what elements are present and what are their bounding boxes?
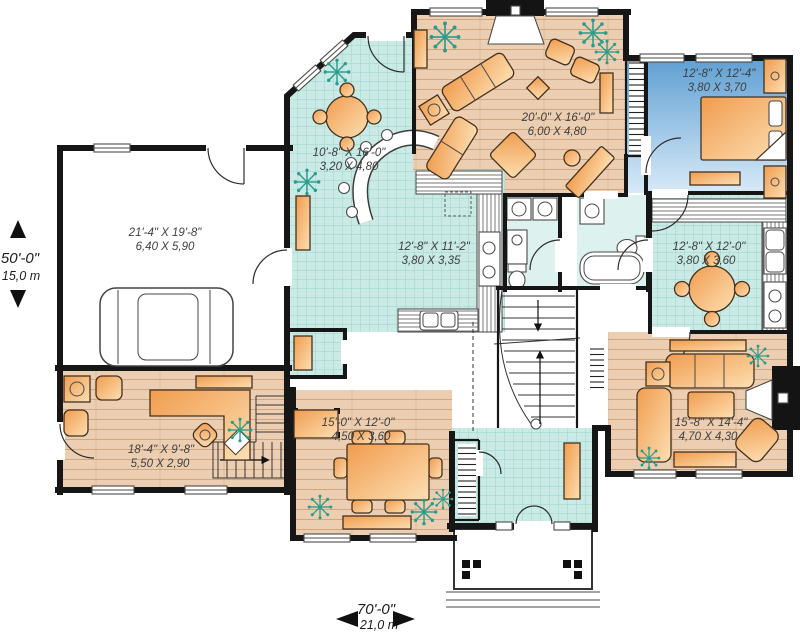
living-shelf [414, 30, 427, 68]
porch-post [563, 560, 571, 568]
bar-stool [382, 130, 393, 141]
window [640, 54, 684, 62]
plant-icon [228, 418, 253, 443]
garage-dimensions-label: 21'-4" X 19'-8" [128, 227, 203, 239]
plant-icon [308, 495, 333, 520]
side-table-icon [646, 362, 670, 386]
arrow-right-icon [393, 611, 415, 627]
console-table [670, 340, 746, 351]
kitchen-counter-top [416, 171, 502, 194]
plant-icon [747, 345, 770, 368]
width-metric-label: 21,0 m [359, 618, 398, 632]
breakfast-dimensions-label: 10'-8" X 16'-0" [313, 147, 387, 159]
window [92, 486, 134, 494]
plant-icon [411, 499, 438, 526]
dining-dimensions-label: 15'-0" X 12'-0" [322, 417, 396, 429]
window [304, 534, 350, 542]
arrow-left-icon [336, 611, 358, 627]
front-porch [446, 529, 600, 607]
kitchen-dimensions-label: 12'-8" X 11'-2" [398, 241, 471, 253]
office-side-table-icon [64, 376, 90, 402]
arrow-down-icon [10, 290, 26, 308]
porch-post [473, 560, 481, 568]
credenza [196, 376, 252, 388]
width-dimension-marker: 70'-0" 21,0 m [336, 601, 415, 632]
window [696, 54, 752, 62]
window [370, 534, 416, 542]
family-dimensions-metric: 4,70 X 4,30 [679, 431, 738, 443]
plant-icon [294, 169, 321, 196]
nook-shelf [296, 196, 310, 250]
office-dimensions-label: 18'-4" X 9'-8" [128, 444, 195, 456]
sofa-icon [666, 354, 754, 388]
plant-icon [638, 447, 661, 470]
mudroom-bench [294, 336, 312, 370]
porch-post [574, 571, 582, 579]
breakfast-dimensions-metric: 3,20 X 4,80 [320, 161, 379, 173]
bar-stool [347, 207, 358, 218]
depth-dimension-marker: 50'-0" 15,0 m [1, 220, 40, 308]
hall-closet-shelving [590, 348, 604, 392]
window [696, 470, 742, 478]
sideboard [343, 516, 411, 529]
bedroom-bench [690, 172, 740, 185]
family-dimensions-label: 15'-8" X 14'-4" [675, 417, 749, 429]
porch-post [462, 560, 470, 568]
foyer-bench [564, 443, 580, 499]
garage-dimensions-metric: 6,40 X 5,90 [136, 241, 195, 253]
foyer-closet-shelving [458, 444, 476, 516]
window [94, 144, 130, 152]
dinette-counter-top [652, 199, 786, 222]
dryer [533, 198, 557, 220]
office-dimensions-metric: 5,50 X 2,90 [131, 458, 190, 470]
pillow [769, 101, 782, 126]
plant-icon [324, 59, 351, 86]
porch-post [574, 560, 582, 568]
window [185, 486, 227, 494]
living-dimensions-label: 20'-0" X 16'-0" [521, 112, 596, 124]
car-icon [100, 288, 233, 366]
family-bench [674, 452, 736, 467]
floor-plan-drawing: 21'-4" X 19'-8" 6,40 X 5,90 10'-8" X 16'… [0, 0, 800, 633]
bedroom-dimensions-label: 12'-8" X 12'-4" [683, 68, 757, 80]
dining-dimensions-metric: 4,50 X 3,60 [332, 431, 391, 443]
office-armchair [64, 410, 88, 436]
tv-cabinet [600, 73, 613, 113]
living-dimensions-metric: 6,00 X 4,80 [528, 126, 587, 138]
window [430, 8, 482, 16]
office-armchair [96, 376, 122, 400]
main-staircase [494, 290, 580, 429]
nightstand-icon [764, 166, 786, 198]
porch-post [462, 571, 470, 579]
bar-stool [339, 183, 350, 194]
washer [507, 198, 531, 220]
plant-icon [430, 22, 461, 53]
bedroom-dimensions-metric: 3,80 X 3,70 [688, 82, 747, 94]
dinette-dimensions-label: 12'-8" X 12'-0" [673, 241, 747, 253]
vanity-sink [580, 198, 604, 224]
plant-icon [433, 489, 454, 510]
office-floor [60, 370, 287, 490]
window [554, 522, 570, 530]
fireplace-hearth [488, 16, 544, 44]
window [634, 470, 676, 478]
dresser-icon [764, 59, 786, 93]
coffee-table-icon [688, 392, 734, 418]
arrow-up-icon [10, 220, 26, 238]
plant-icon [595, 40, 620, 65]
depth-metric-label: 15,0 m [2, 269, 40, 283]
bed-icon [701, 97, 786, 160]
floor-plan-canvas: 21'-4" X 19'-8" 6,40 X 5,90 10'-8" X 16'… [0, 0, 800, 633]
window [546, 8, 598, 16]
width-imperial-label: 70'-0" [357, 601, 396, 618]
depth-imperial-label: 50'-0" [1, 250, 40, 267]
window [496, 522, 512, 530]
dinette-sink [764, 228, 786, 274]
plant-icon [579, 19, 608, 48]
dinette-dimensions-metric: 3,80 X 3,60 [677, 255, 736, 267]
kitchen-dimensions-metric: 3,80 X 3,35 [402, 255, 461, 267]
